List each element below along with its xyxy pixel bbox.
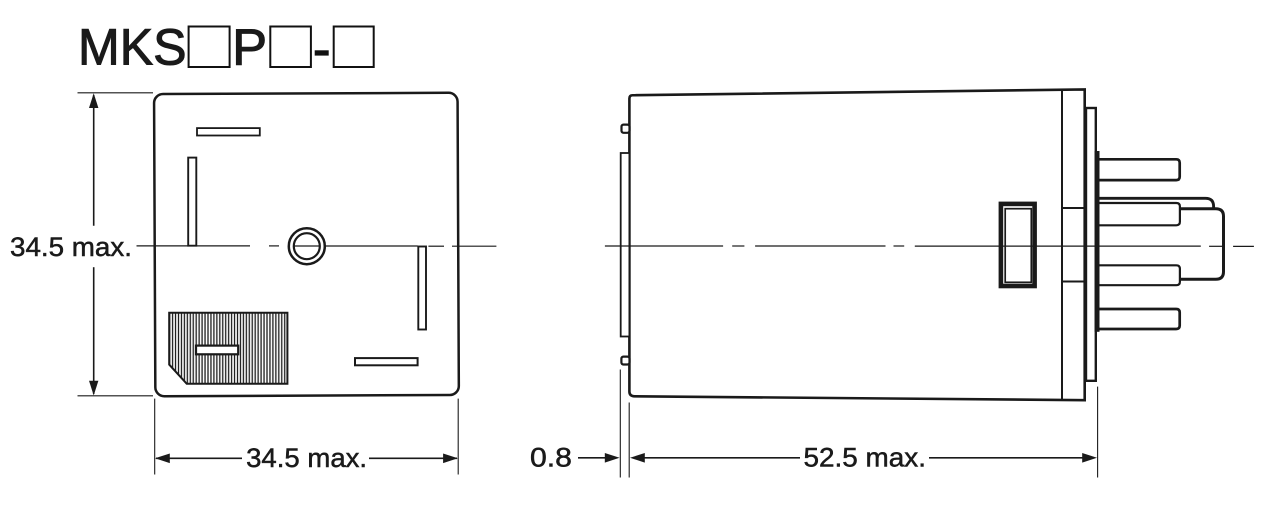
- svg-text:34.5 max.: 34.5 max.: [246, 443, 367, 473]
- svg-text:P: P: [232, 19, 267, 76]
- svg-text:52.5 max.: 52.5 max.: [804, 443, 927, 473]
- svg-text:0.8: 0.8: [530, 443, 572, 473]
- svg-text:MKS: MKS: [78, 19, 187, 76]
- svg-text:34.5 max.: 34.5 max.: [10, 232, 132, 262]
